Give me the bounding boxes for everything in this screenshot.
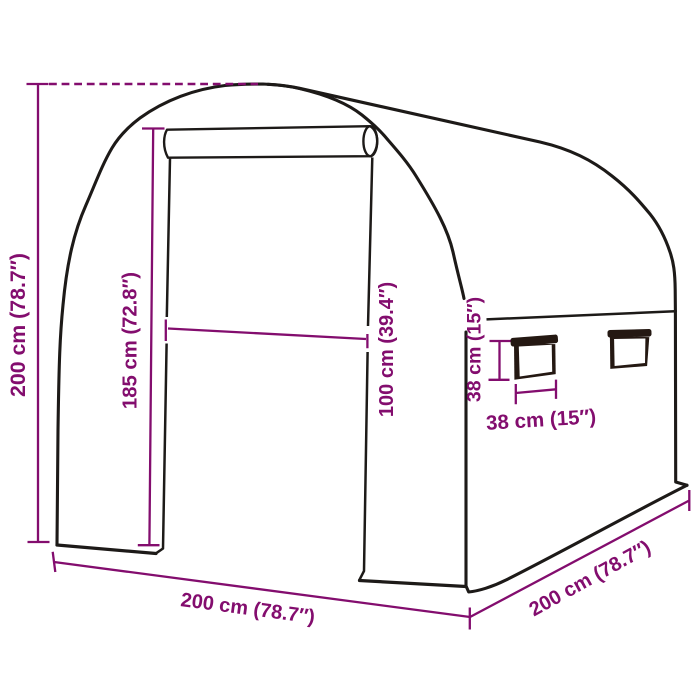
svg-text:100 cm (39.4″): 100 cm (39.4″)	[376, 282, 398, 417]
svg-text:200 cm (78.7″): 200 cm (78.7″)	[6, 253, 30, 397]
svg-text:185 cm (72.8″): 185 cm (72.8″)	[119, 272, 141, 409]
svg-text:38 cm (15″): 38 cm (15″)	[464, 297, 486, 402]
